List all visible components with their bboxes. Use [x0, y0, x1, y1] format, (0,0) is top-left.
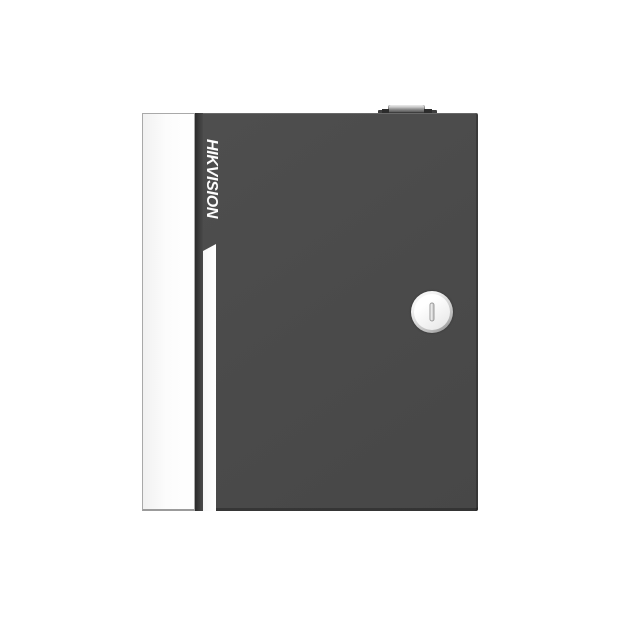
keyhole-slot-icon — [430, 303, 435, 322]
side-panel — [142, 113, 195, 511]
product-photo: HIKVISION — [0, 0, 620, 620]
lock-face — [414, 294, 450, 330]
top-latch-tab — [388, 105, 425, 112]
accent-stripe — [203, 244, 216, 511]
door-edge-shadow — [195, 113, 203, 511]
hikvision-logo: HIKVISION — [203, 139, 219, 218]
cam-lock-icon — [411, 291, 453, 333]
